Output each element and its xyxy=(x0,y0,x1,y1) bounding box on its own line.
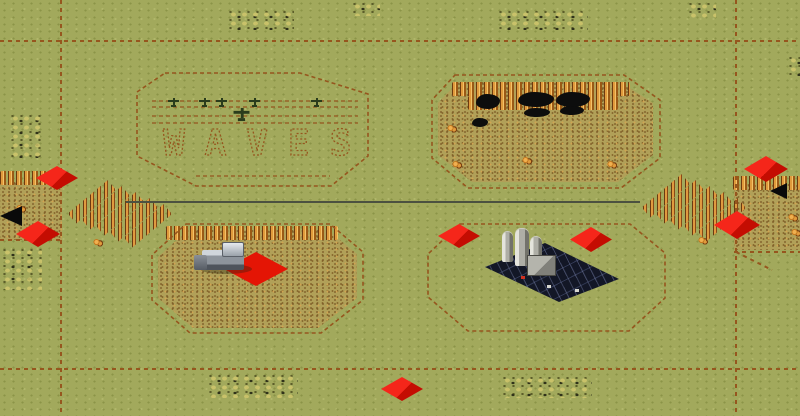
harvester-unit[interactable] xyxy=(194,238,266,280)
black-arrow-marker[interactable] xyxy=(0,206,22,226)
refinery-building[interactable] xyxy=(483,229,623,304)
refinery-light xyxy=(547,285,551,288)
refinery-silo xyxy=(502,232,513,262)
black-arrow-marker[interactable] xyxy=(770,183,787,199)
game-screen: WAVES xyxy=(0,0,800,416)
refinery-light-red xyxy=(521,276,525,279)
red-marker-diamond[interactable] xyxy=(381,377,423,401)
aircraft-sprite[interactable] xyxy=(199,98,210,107)
aircraft-sprite[interactable] xyxy=(249,98,260,107)
aircraft-sprite[interactable] xyxy=(311,98,322,107)
game-map[interactable]: WAVES xyxy=(0,0,800,416)
aircraft-sprite[interactable] xyxy=(168,98,179,107)
harvester-cab xyxy=(222,242,244,257)
red-marker-diamond[interactable] xyxy=(744,156,788,182)
refinery-block xyxy=(527,255,556,276)
red-marker-diamond[interactable] xyxy=(714,211,760,239)
red-marker-diamond[interactable] xyxy=(438,224,480,248)
aircraft-sprite[interactable] xyxy=(234,108,250,121)
red-marker-diamond[interactable] xyxy=(16,221,60,247)
sprite-layer xyxy=(0,0,800,416)
refinery-light xyxy=(575,289,579,292)
red-marker-diamond[interactable] xyxy=(36,166,78,190)
harvester-hopper xyxy=(194,255,207,270)
aircraft-sprite[interactable] xyxy=(216,98,227,107)
